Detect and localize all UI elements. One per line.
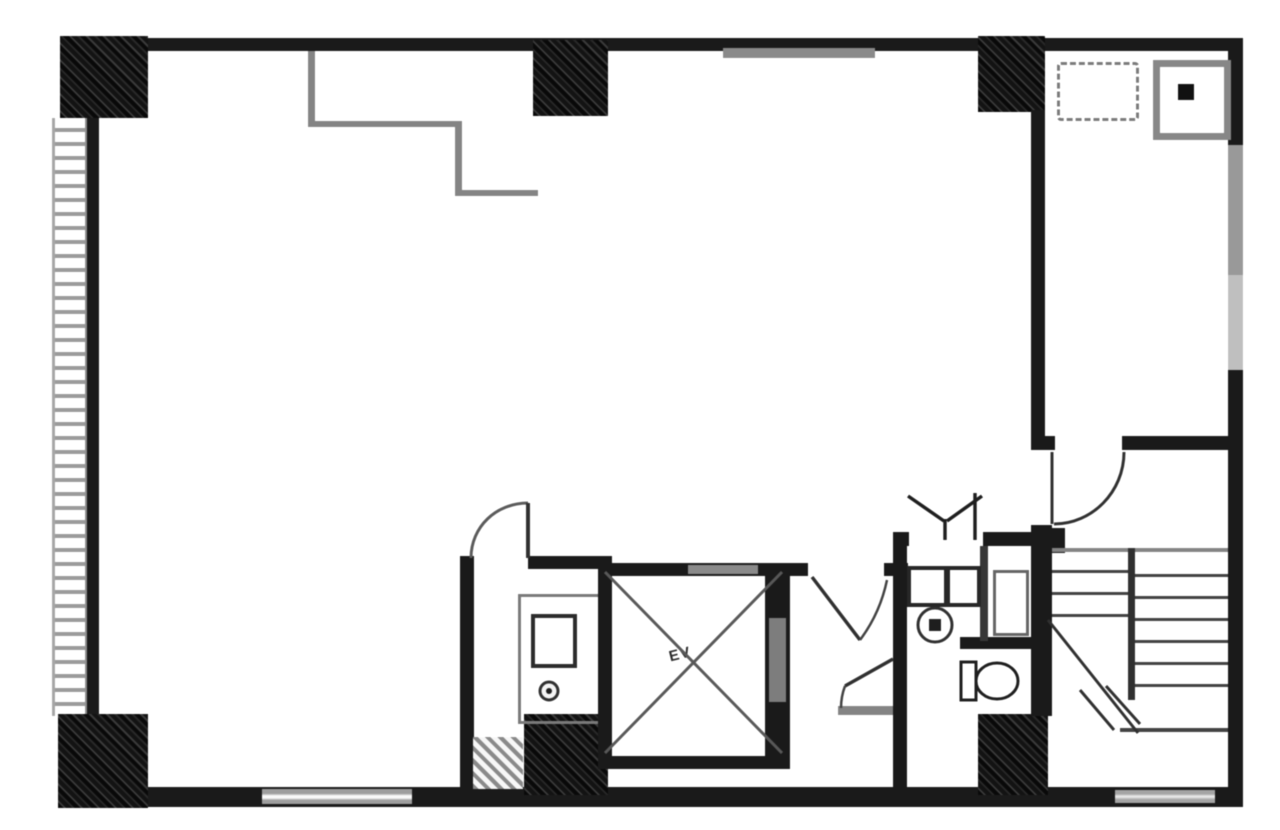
toilet-bowl	[976, 663, 1018, 699]
door-arc-corridor-upper	[860, 580, 887, 640]
door-leaf-corridor-lower	[845, 659, 893, 686]
kitchen-burner-center	[546, 688, 552, 694]
linework-layer	[0, 0, 1280, 830]
door-arc-kitchen	[471, 503, 528, 558]
double-door-leaf-left	[908, 496, 944, 521]
door-arc-landing	[1054, 452, 1124, 524]
stair-break-line	[1106, 686, 1140, 724]
toilet-tank	[961, 662, 976, 700]
door-leaf-corridor-upper	[812, 577, 860, 640]
door-arc-corridor-lower	[841, 686, 845, 708]
floor-plan: EV	[0, 0, 1280, 830]
stair-break-line	[1048, 620, 1138, 733]
washbasin-drain	[929, 619, 941, 631]
